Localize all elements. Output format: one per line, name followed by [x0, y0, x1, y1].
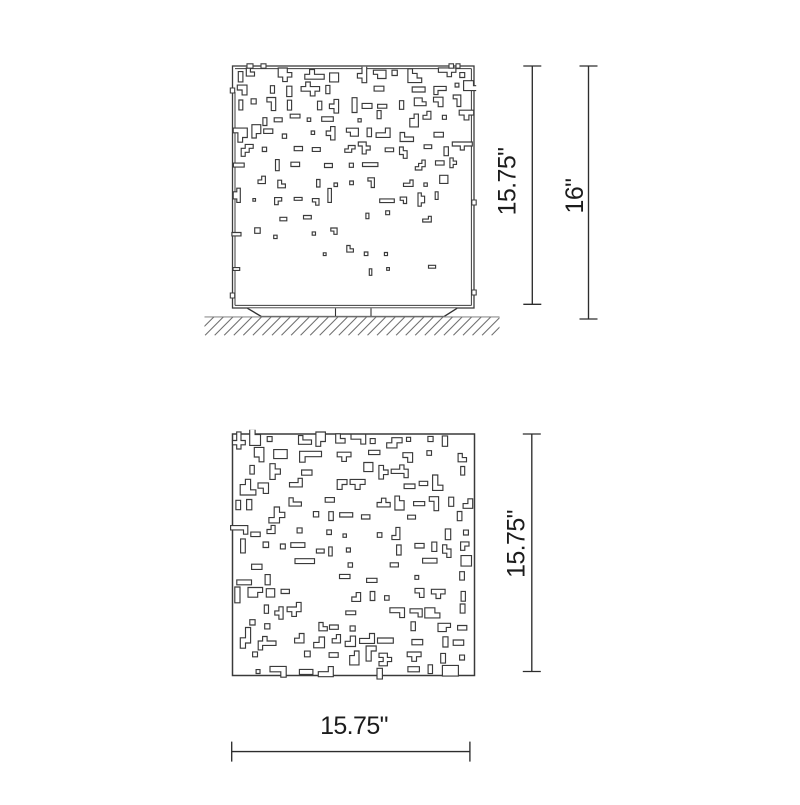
svg-text:15.75": 15.75" [503, 510, 531, 578]
svg-text:15.75": 15.75" [494, 148, 522, 216]
svg-text:15.75": 15.75" [320, 712, 388, 740]
svg-text:16": 16" [561, 179, 589, 214]
